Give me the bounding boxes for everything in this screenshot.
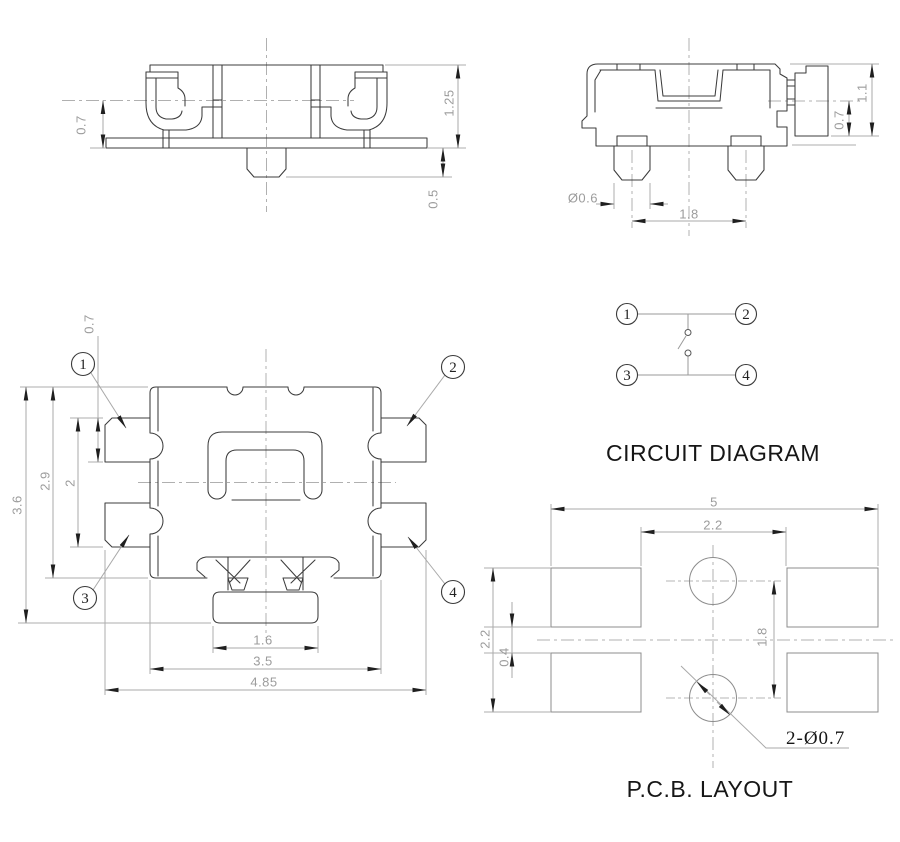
pin-1-number: 1 bbox=[79, 357, 87, 373]
pcb-hole-callout-label: 2-Ø0.7 bbox=[786, 728, 845, 749]
top-extension-lines bbox=[18, 336, 426, 695]
circuit-pin-3: 3 bbox=[617, 365, 638, 386]
pcb-dim-pad-height-label: 2.2 bbox=[478, 629, 493, 649]
top-stem bbox=[197, 557, 339, 623]
pcb-layout: 5 2.2 2.2 0.4 1.8 2-Ø0.7 P.C.B. LAYOUT bbox=[478, 495, 898, 803]
circuit-wires bbox=[638, 314, 735, 375]
side-dim-terminal-label: 0.7 bbox=[832, 110, 847, 130]
pcb-hole-leader-arrow-upper bbox=[697, 682, 710, 695]
pin-callout-1: 1 bbox=[72, 353, 127, 429]
pcb-hole-leader-arrow-lower bbox=[717, 702, 730, 715]
circuit-pin-4: 4 bbox=[736, 365, 757, 386]
side-dim-total-label: 1.1 bbox=[855, 83, 870, 103]
front-dim-flange-label: 0.7 bbox=[74, 115, 89, 135]
circuit-contact-upper bbox=[685, 330, 691, 336]
pin-callout-2: 2 bbox=[407, 356, 465, 427]
pin-callout-4: 4 bbox=[408, 537, 465, 604]
top-dim-terminal-w-label: 0.7 bbox=[82, 314, 97, 334]
top-dim-total-h-label: 3.6 bbox=[10, 495, 25, 515]
pcb-dim-total-w-label: 5 bbox=[710, 495, 718, 510]
technical-drawing: 0.7 1.25 0.5 Ø0.6 1.8 1.1 0.7 bbox=[0, 0, 900, 842]
circuit-contact-lower bbox=[685, 350, 691, 356]
circuit-pin-1-number: 1 bbox=[623, 307, 631, 323]
circuit-diagram: 1 2 3 4 CIRCUIT DIAGRAM bbox=[606, 304, 820, 467]
pcb-extension-lines bbox=[484, 504, 878, 712]
pcb-pad-top-right bbox=[787, 568, 878, 627]
pcb-pad-bottom-left bbox=[551, 653, 641, 712]
circuit-pin-3-number: 3 bbox=[623, 368, 631, 384]
top-dim-total-w-label: 4.85 bbox=[250, 675, 277, 690]
drawing-sheet: 0.7 1.25 0.5 Ø0.6 1.8 1.1 0.7 bbox=[0, 0, 900, 842]
pin-4-number: 4 bbox=[449, 585, 457, 601]
side-details bbox=[595, 64, 795, 146]
side-dim-pitch-label: 1.8 bbox=[679, 207, 699, 222]
pcb-pad-bottom-right bbox=[787, 653, 878, 712]
circuit-pin-2-number: 2 bbox=[742, 307, 750, 323]
pin-3-number: 3 bbox=[81, 591, 89, 607]
pin-2-number: 2 bbox=[449, 360, 457, 376]
side-outline bbox=[582, 64, 787, 146]
top-dim-terminal-span-label: 2 bbox=[63, 479, 78, 487]
top-dim-body-w-label: 3.5 bbox=[253, 654, 273, 669]
pin-2-leader bbox=[407, 375, 445, 426]
front-dim-total-label: 1.25 bbox=[442, 89, 457, 116]
front-clip-left bbox=[146, 72, 213, 148]
circuit-pin-2: 2 bbox=[736, 304, 757, 325]
side-dim-peg-dia-label: Ø0.6 bbox=[568, 191, 598, 206]
pcb-dim-pad-span-label: 2.2 bbox=[703, 518, 723, 533]
pcb-dim-hole-pitch-label: 1.8 bbox=[755, 627, 770, 647]
top-dim-stem-w-label: 1.6 bbox=[253, 633, 273, 648]
top-dim-body-h-label: 2.9 bbox=[38, 471, 53, 491]
pin-callout-3: 3 bbox=[74, 535, 130, 610]
front-view: 0.7 1.25 0.5 bbox=[62, 38, 466, 212]
circuit-diagram-title: CIRCUIT DIAGRAM bbox=[606, 440, 820, 466]
top-actuator bbox=[208, 432, 322, 500]
pin-3-leader bbox=[93, 535, 129, 590]
side-view: Ø0.6 1.8 1.1 0.7 bbox=[568, 38, 879, 236]
circuit-pin-1: 1 bbox=[617, 304, 638, 325]
pin-1-leader bbox=[91, 373, 126, 428]
circuit-pin-4-number: 4 bbox=[742, 368, 750, 384]
front-clip-right bbox=[320, 72, 387, 148]
pcb-pad-top-left bbox=[551, 568, 641, 627]
pcb-layout-title: P.C.B. LAYOUT bbox=[627, 776, 794, 802]
top-view: 3.6 2.9 2 0.7 1.6 3.5 4.85 1 2 3 4 bbox=[10, 314, 465, 695]
front-dim-stem-label: 0.5 bbox=[426, 189, 441, 209]
pcb-dim-pad-gap-label: 0.4 bbox=[497, 647, 512, 667]
